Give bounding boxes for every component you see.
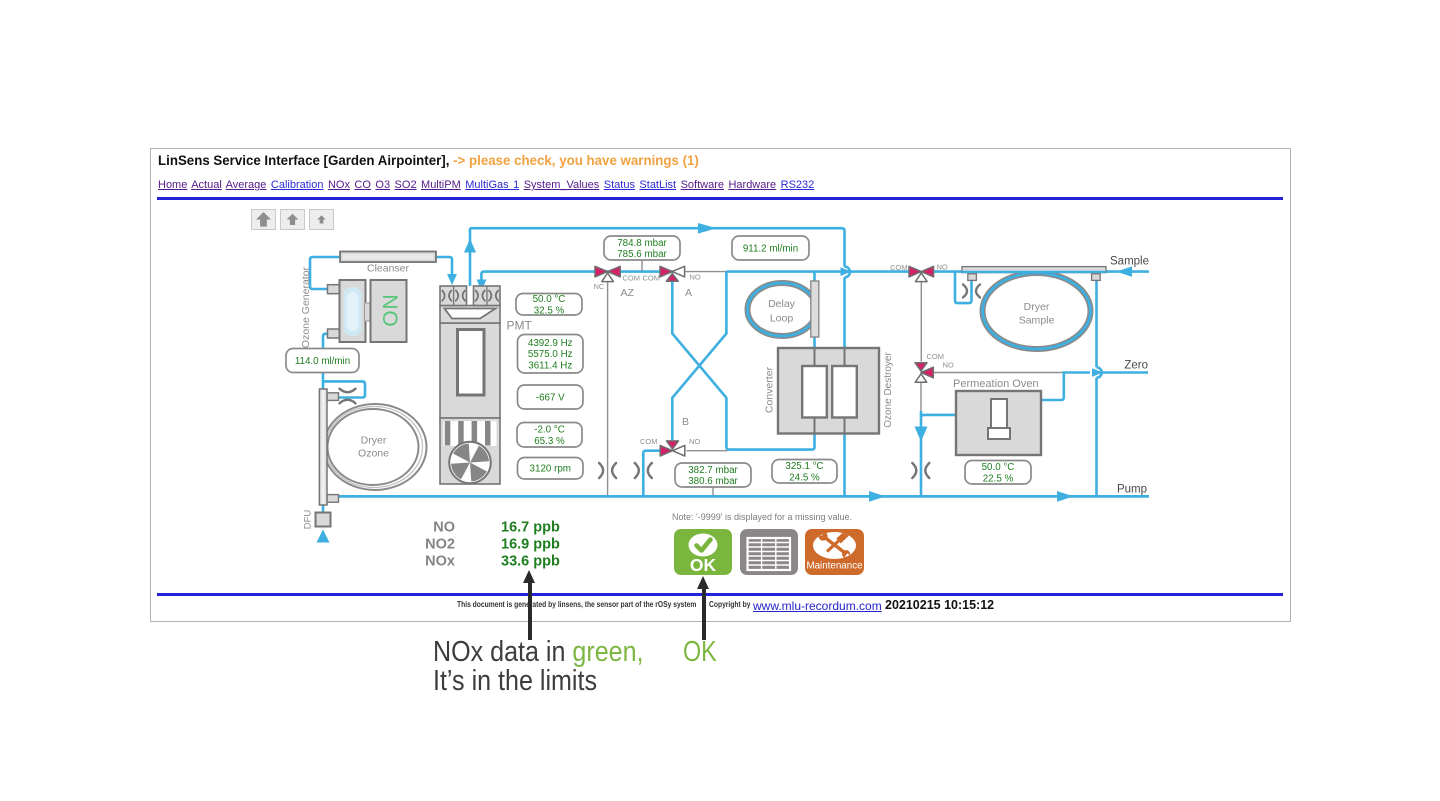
svg-text:Maintenance: Maintenance [806,561,863,572]
svg-text:Cleanser: Cleanser [367,263,410,275]
svg-text:NOx: NOx [425,554,455,570]
svg-text:AZ: AZ [621,287,635,299]
svg-text:A: A [685,287,692,299]
svg-text:Converter: Converter [763,366,775,413]
svg-text:NO: NO [937,263,948,272]
svg-text:380.6 mbar: 380.6 mbar [688,476,738,487]
svg-text:4392.9 Hz: 4392.9 Hz [528,338,573,349]
svg-text:16.7 ppb: 16.7 ppb [501,520,560,536]
svg-text:Ozone: Ozone [358,448,389,460]
svg-text:50.0 °C: 50.0 °C [982,462,1015,473]
svg-text:3120 rpm: 3120 rpm [530,464,571,475]
svg-text:COM: COM [643,273,661,282]
svg-text:NO2: NO2 [425,537,455,553]
svg-text:NO: NO [943,361,954,370]
svg-text:Sample: Sample [1019,315,1055,327]
svg-text:Loop: Loop [770,313,794,325]
svg-text:784.8 mbar: 784.8 mbar [617,238,667,249]
svg-text:24.5 %: 24.5 % [789,472,820,483]
svg-text:Ozone Destroyer: Ozone Destroyer [883,352,894,428]
svg-text:NO: NO [433,520,455,536]
svg-text:Sample: Sample [1110,256,1149,268]
svg-text:COM: COM [640,437,658,446]
svg-text:3611.4 Hz: 3611.4 Hz [528,360,572,371]
svg-text:Dryer: Dryer [361,435,387,447]
svg-text:-2.0 °C: -2.0 °C [534,425,565,436]
svg-text:NO: NO [690,272,701,281]
svg-text:COM: COM [890,263,908,272]
svg-text:32.5 %: 32.5 % [534,305,565,316]
svg-text:22.5 %: 22.5 % [983,473,1014,484]
svg-text:Pump: Pump [1117,484,1147,496]
svg-text:Note: '-9999' is displayed for: Note: '-9999' is displayed for a missing… [672,512,852,522]
svg-text:5575.0 Hz: 5575.0 Hz [528,349,573,360]
svg-text:50.0 °C: 50.0 °C [533,294,566,305]
svg-text:PMT: PMT [507,319,533,333]
svg-text:65.3 %: 65.3 % [534,436,565,447]
svg-text:114.0 ml/min: 114.0 ml/min [295,356,350,367]
svg-text:NO: NO [689,437,700,446]
svg-text:DFU: DFU [303,510,314,530]
svg-text:B: B [682,416,689,428]
svg-text:NO: NO [378,294,401,328]
svg-text:382.7 mbar: 382.7 mbar [688,465,738,476]
svg-text:OK: OK [690,555,717,575]
svg-text:Delay: Delay [768,298,796,310]
svg-text:COM: COM [927,352,945,361]
svg-text:Permeation Oven: Permeation Oven [953,378,1039,390]
svg-text:33.6 ppb: 33.6 ppb [501,554,560,570]
svg-text:16.9 ppb: 16.9 ppb [501,537,560,553]
svg-text:911.2 ml/min: 911.2 ml/min [743,243,798,254]
svg-text:325.1 °C: 325.1 °C [785,461,823,472]
svg-text:-667 V: -667 V [536,392,565,403]
svg-text:Dryer: Dryer [1024,301,1050,313]
svg-text:785.6 mbar: 785.6 mbar [617,249,667,260]
svg-text:NC: NC [594,282,605,291]
svg-text:Ozone Generator: Ozone Generator [300,266,312,348]
svg-text:COM: COM [623,273,641,282]
svg-text:Zero: Zero [1124,360,1148,372]
